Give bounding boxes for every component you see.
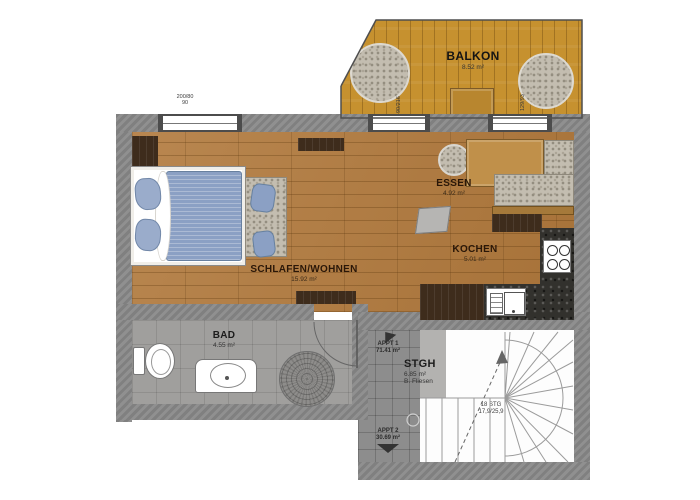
corridor-detail-circle: [407, 414, 419, 426]
balcony-outline: [341, 20, 582, 118]
floor-plan: BALKON 8.52 m² 200/80 90 90/216 129/93 S…: [0, 0, 700, 500]
stair-treads: [420, 332, 573, 462]
linework-overlay: [0, 0, 700, 500]
stair-walkline: [455, 350, 508, 462]
bathroom-door: [314, 320, 357, 368]
stair-spiral-arc: [505, 340, 563, 456]
